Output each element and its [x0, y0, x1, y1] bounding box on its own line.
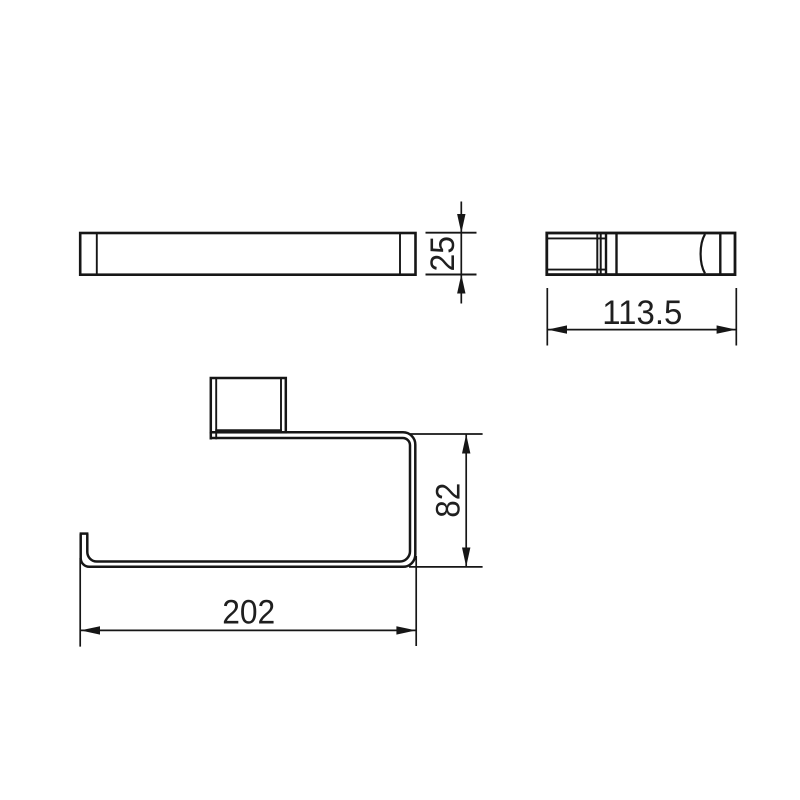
svg-text:113.5: 113.5: [602, 294, 682, 332]
svg-text:82: 82: [430, 483, 468, 518]
svg-text:202: 202: [222, 594, 275, 632]
svg-text:25: 25: [424, 236, 462, 272]
